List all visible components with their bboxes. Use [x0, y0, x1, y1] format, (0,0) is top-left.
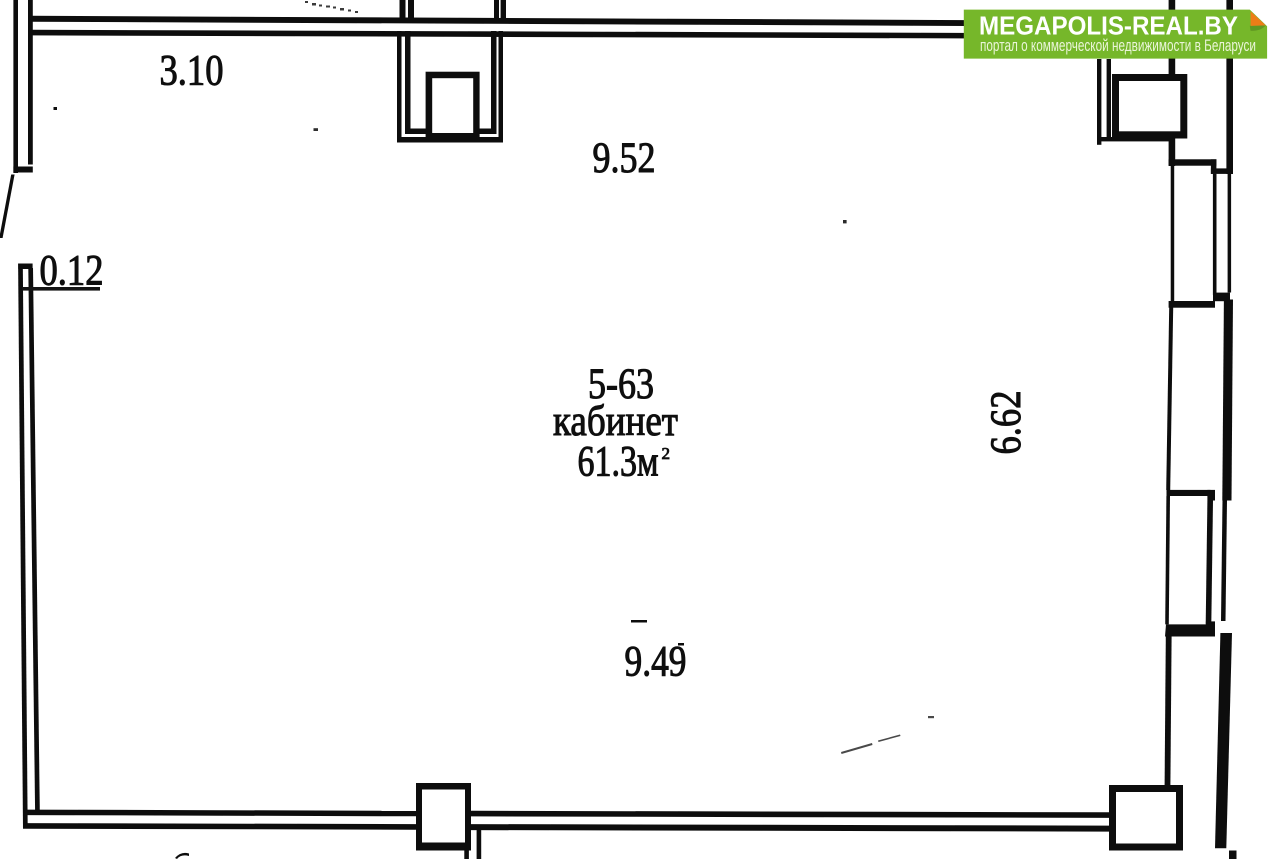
svg-text:3.10: 3.10 [160, 48, 224, 95]
svg-text:портал о коммерческой недвижим: портал о коммерческой недвижимости в Бел… [980, 37, 1256, 55]
svg-text:61.3м: 61.3м [578, 439, 659, 486]
svg-text:9.49: 9.49 [625, 639, 687, 686]
svg-text:9.52: 9.52 [593, 135, 656, 182]
svg-text:6.62: 6.62 [983, 391, 1030, 455]
svg-text:2: 2 [662, 444, 671, 463]
